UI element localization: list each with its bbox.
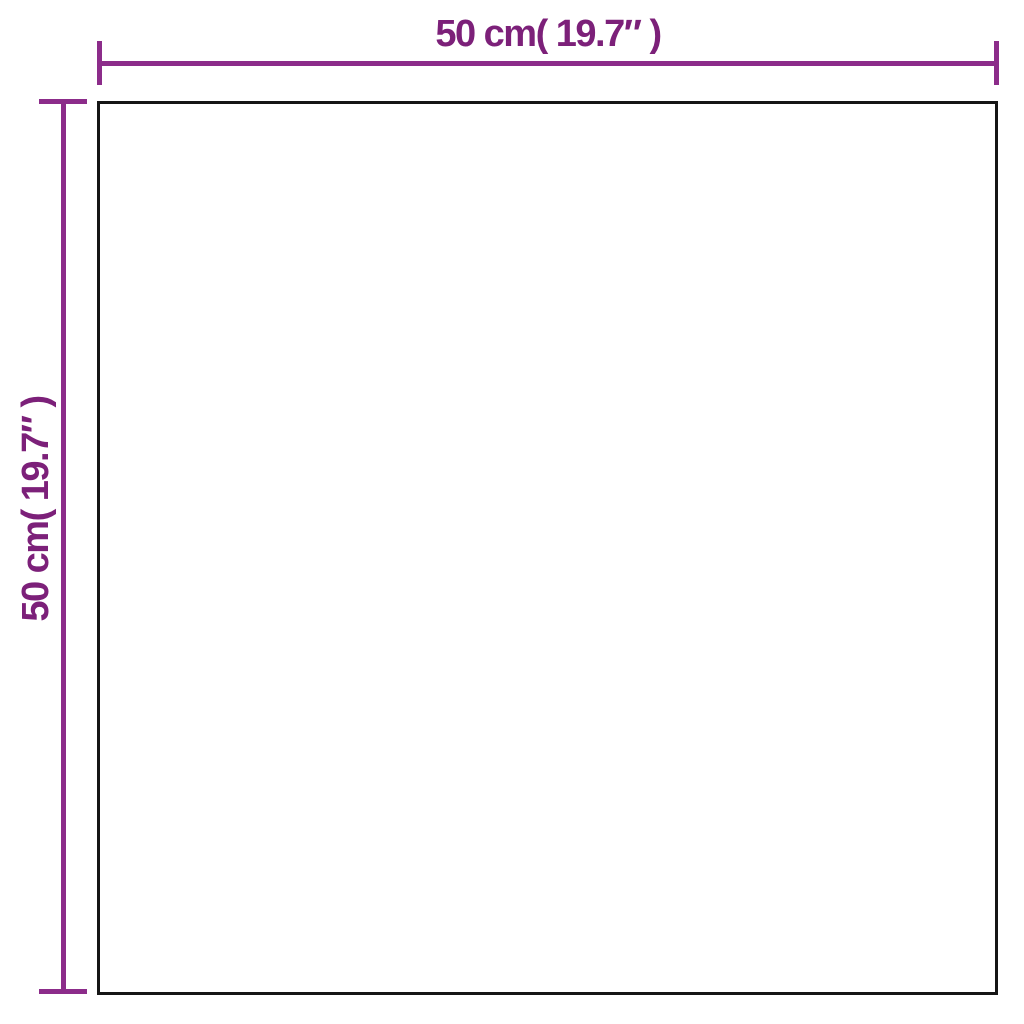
width-dimension-left-end-cap <box>97 41 102 85</box>
height-dimension-label: 50 cm( 19.7″ ) <box>13 309 59 709</box>
height-dimension-top-end-cap <box>39 99 87 104</box>
dimension-diagram: 50 cm( 19.7″ ) 50 cm( 19.7″ ) <box>0 0 1024 1024</box>
height-dimension-bottom-end-cap <box>39 989 87 994</box>
width-dimension-right-end-cap <box>994 41 999 85</box>
product-outline-square <box>97 101 998 995</box>
width-dimension-label: 50 cm( 19.7″ ) <box>97 11 999 57</box>
height-dimension-line <box>61 101 66 993</box>
width-dimension-line <box>97 61 999 66</box>
